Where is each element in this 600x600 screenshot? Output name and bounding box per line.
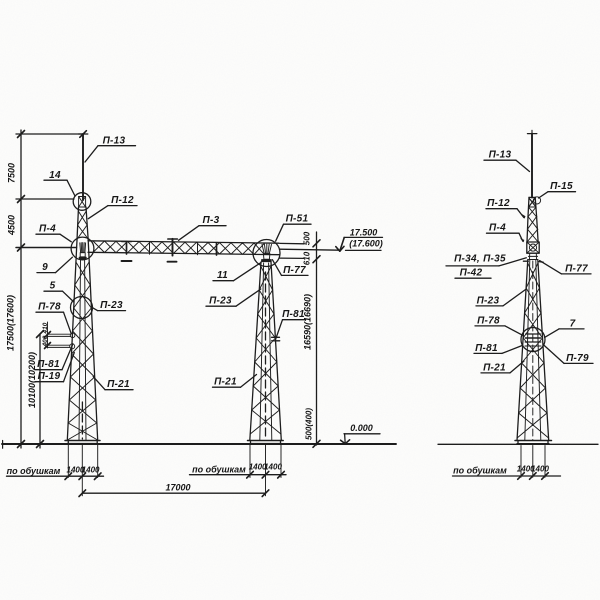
svg-text:500: 500 (303, 231, 312, 245)
svg-text:17.500: 17.500 (350, 228, 378, 238)
svg-text:П-13: П-13 (489, 150, 512, 161)
svg-text:14: 14 (49, 170, 61, 181)
svg-text:П-12: П-12 (487, 198, 510, 209)
svg-text:П-4: П-4 (39, 224, 56, 235)
svg-text:П-19: П-19 (38, 371, 61, 382)
svg-text:0.000: 0.000 (350, 423, 373, 433)
svg-text:1400: 1400 (264, 463, 282, 472)
svg-text:П-12: П-12 (111, 195, 134, 206)
svg-text:(17.600): (17.600) (349, 238, 383, 248)
svg-text:П-23: П-23 (209, 296, 232, 307)
svg-text:П-23: П-23 (477, 295, 500, 306)
svg-text:П-78: П-78 (477, 315, 500, 326)
svg-text:П-81: П-81 (475, 343, 498, 354)
svg-text:1400: 1400 (531, 465, 549, 474)
svg-text:17500(17600): 17500(17600) (6, 295, 16, 351)
svg-text:П-78: П-78 (38, 302, 61, 313)
svg-text:П-42: П-42 (460, 268, 483, 279)
svg-text:7500: 7500 (7, 163, 17, 183)
svg-text:П-15: П-15 (550, 181, 573, 192)
svg-text:П-4: П-4 (489, 223, 506, 234)
svg-text:П-21: П-21 (214, 377, 237, 388)
svg-text:11: 11 (217, 270, 228, 281)
svg-text:П-23: П-23 (100, 300, 123, 311)
svg-text:10100(10200): 10100(10200) (27, 352, 37, 408)
svg-text:П-79: П-79 (566, 353, 589, 364)
svg-text:610: 610 (303, 251, 312, 265)
svg-text:П-21: П-21 (107, 379, 130, 390)
svg-text:410: 410 (42, 322, 49, 334)
svg-text:500(400): 500(400) (305, 408, 314, 440)
svg-text:по обушкам: по обушкам (192, 465, 246, 475)
svg-text:П-3: П-3 (203, 215, 220, 226)
svg-text:9: 9 (42, 262, 48, 273)
svg-text:по обушкам: по обушкам (7, 466, 61, 476)
svg-text:17000: 17000 (165, 482, 190, 492)
svg-text:П-77: П-77 (565, 263, 588, 274)
svg-text:П-81: П-81 (37, 359, 60, 370)
svg-text:1400: 1400 (82, 466, 100, 475)
svg-text:по обушкам: по обушкам (453, 466, 507, 476)
svg-text:4500: 4500 (7, 215, 17, 236)
svg-text:7: 7 (570, 318, 576, 329)
svg-text:П-77: П-77 (283, 265, 306, 276)
svg-text:5: 5 (50, 281, 56, 292)
svg-text:П-34, П-35: П-34, П-35 (454, 254, 506, 265)
svg-text:П-51: П-51 (286, 214, 309, 225)
svg-text:16590(16690): 16590(16690) (303, 294, 313, 350)
svg-text:П-21: П-21 (483, 362, 506, 373)
